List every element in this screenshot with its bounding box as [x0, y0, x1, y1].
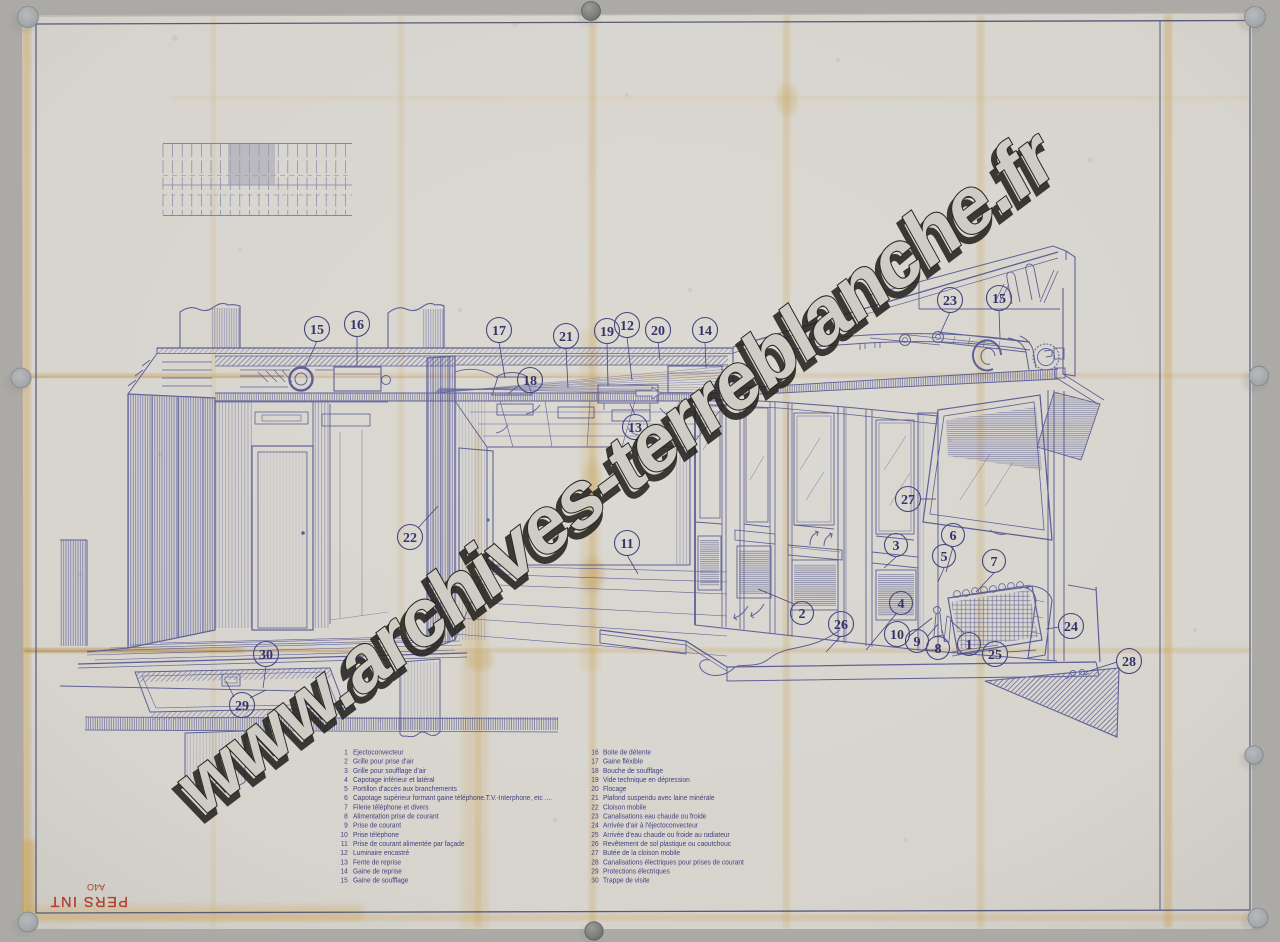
- svg-text:Boite de détente: Boite de détente: [603, 748, 651, 757]
- svg-text:17: 17: [492, 324, 506, 339]
- svg-text:9: 9: [344, 821, 348, 830]
- svg-text:20: 20: [591, 785, 598, 794]
- svg-text:Capotage supérieur formant gai: Capotage supérieur formant gaine télépho…: [353, 794, 552, 803]
- svg-text:30: 30: [259, 648, 273, 663]
- svg-text:Grille pour prise d'air: Grille pour prise d'air: [353, 757, 414, 766]
- svg-text:19: 19: [600, 325, 614, 340]
- svg-text:Portillon d'accès aux branchem: Portillon d'accès aux branchements: [353, 785, 457, 794]
- svg-text:24: 24: [591, 821, 598, 830]
- svg-text:29: 29: [591, 867, 598, 876]
- svg-text:Flocage: Flocage: [603, 785, 627, 794]
- svg-text:Arrivée d'air à l'éjectoconvec: Arrivée d'air à l'éjectoconvecteur: [603, 821, 699, 830]
- svg-text:Arrivée d'eau chaude ou froide: Arrivée d'eau chaude ou froide au radiat…: [603, 830, 730, 839]
- svg-text:Butée de la cloison mobile: Butée de la cloison mobile: [603, 849, 680, 858]
- svg-text:12: 12: [620, 319, 634, 334]
- svg-text:26: 26: [591, 840, 598, 849]
- svg-text:17: 17: [591, 757, 598, 766]
- svg-text:6: 6: [344, 794, 348, 803]
- svg-text:15: 15: [340, 876, 347, 885]
- svg-text:5: 5: [344, 785, 348, 794]
- svg-text:25: 25: [988, 648, 1002, 663]
- svg-text:27: 27: [591, 849, 598, 858]
- svg-text:20: 20: [651, 324, 665, 339]
- svg-text:A4O: A4O: [87, 882, 105, 892]
- svg-text:Cloison mobile: Cloison mobile: [603, 803, 646, 812]
- svg-text:Bouche de soufflage: Bouche de soufflage: [603, 766, 663, 775]
- svg-text:Gaine fléxible: Gaine fléxible: [603, 757, 643, 766]
- svg-text:3: 3: [893, 539, 900, 554]
- svg-text:Capotage inférieur et latéral: Capotage inférieur et latéral: [353, 776, 435, 785]
- svg-text:1: 1: [966, 638, 973, 653]
- svg-text:Canalisations électriques pour: Canalisations électriques pour prises de…: [603, 858, 744, 867]
- svg-text:23: 23: [943, 294, 957, 309]
- svg-text:Prise téléphone: Prise téléphone: [353, 830, 399, 839]
- svg-text:Gaine de reprise: Gaine de reprise: [353, 867, 402, 876]
- svg-text:1: 1: [344, 748, 348, 757]
- svg-text:21: 21: [591, 794, 598, 803]
- svg-text:Plafond suspendu avec laine mi: Plafond suspendu avec laine minérale: [603, 794, 715, 803]
- svg-text:Grille pour soufflage d'air: Grille pour soufflage d'air: [353, 766, 427, 775]
- svg-text:Canalisations eau chaude ou fr: Canalisations eau chaude ou froide: [603, 812, 707, 821]
- svg-text:23: 23: [591, 812, 598, 821]
- svg-text:Protections électriques: Protections électriques: [603, 867, 670, 876]
- svg-text:Filerie téléphone et divers: Filerie téléphone et divers: [353, 803, 429, 812]
- svg-text:12: 12: [340, 849, 347, 858]
- svg-text:15: 15: [992, 292, 1006, 307]
- svg-text:4: 4: [898, 597, 905, 612]
- svg-text:Revêtement de sol plastique ou: Revêtement de sol plastique ou caoutchou…: [603, 840, 731, 849]
- svg-text:11: 11: [620, 537, 633, 552]
- svg-text:4: 4: [344, 776, 348, 785]
- svg-text:11: 11: [341, 840, 348, 849]
- svg-text:24: 24: [1064, 620, 1078, 635]
- svg-text:18: 18: [523, 374, 537, 389]
- svg-text:7: 7: [991, 555, 998, 570]
- svg-text:Gaine de soufflage: Gaine de soufflage: [353, 876, 408, 885]
- svg-text:19: 19: [591, 776, 598, 785]
- svg-text:28: 28: [1122, 655, 1136, 670]
- svg-text:10: 10: [890, 628, 904, 643]
- svg-text:Alimentation prise de courant: Alimentation prise de courant: [353, 812, 438, 821]
- svg-text:10: 10: [340, 830, 347, 839]
- svg-text:7: 7: [344, 803, 348, 812]
- svg-text:14: 14: [340, 867, 347, 876]
- svg-text:18: 18: [591, 766, 598, 775]
- svg-text:Prise de courant: Prise de courant: [353, 821, 401, 830]
- svg-text:2: 2: [344, 757, 348, 766]
- svg-text:25: 25: [591, 830, 598, 839]
- svg-text:13: 13: [340, 858, 347, 867]
- svg-text:5: 5: [941, 550, 948, 565]
- svg-text:3: 3: [344, 766, 348, 775]
- svg-text:6: 6: [950, 529, 957, 544]
- svg-text:27: 27: [901, 493, 915, 508]
- svg-text:Fente de reprise: Fente de reprise: [353, 858, 401, 867]
- svg-text:14: 14: [698, 324, 712, 339]
- svg-text:2: 2: [799, 607, 806, 622]
- svg-text:16: 16: [591, 748, 598, 757]
- svg-text:9: 9: [914, 635, 921, 650]
- svg-text:Trappe de visite: Trappe de visite: [603, 876, 650, 885]
- svg-text:22: 22: [403, 531, 417, 546]
- svg-text:28: 28: [591, 858, 598, 867]
- svg-text:8: 8: [344, 812, 348, 821]
- svg-text:26: 26: [834, 618, 848, 633]
- svg-text:15: 15: [310, 323, 324, 338]
- svg-text:21: 21: [559, 330, 573, 345]
- svg-text:Ejectoconvecteur: Ejectoconvecteur: [353, 748, 404, 757]
- svg-text:Vide technique en dépression: Vide technique en dépression: [603, 776, 690, 785]
- svg-text:PERS INT: PERS INT: [49, 893, 128, 909]
- svg-text:30: 30: [591, 876, 598, 885]
- svg-text:16: 16: [350, 318, 364, 333]
- svg-text:Luminaire encastré: Luminaire encastré: [353, 849, 409, 858]
- svg-text:8: 8: [935, 642, 942, 657]
- svg-text:22: 22: [591, 803, 598, 812]
- svg-text:Prise de courant alimentée par: Prise de courant alimentée par façade: [353, 840, 465, 849]
